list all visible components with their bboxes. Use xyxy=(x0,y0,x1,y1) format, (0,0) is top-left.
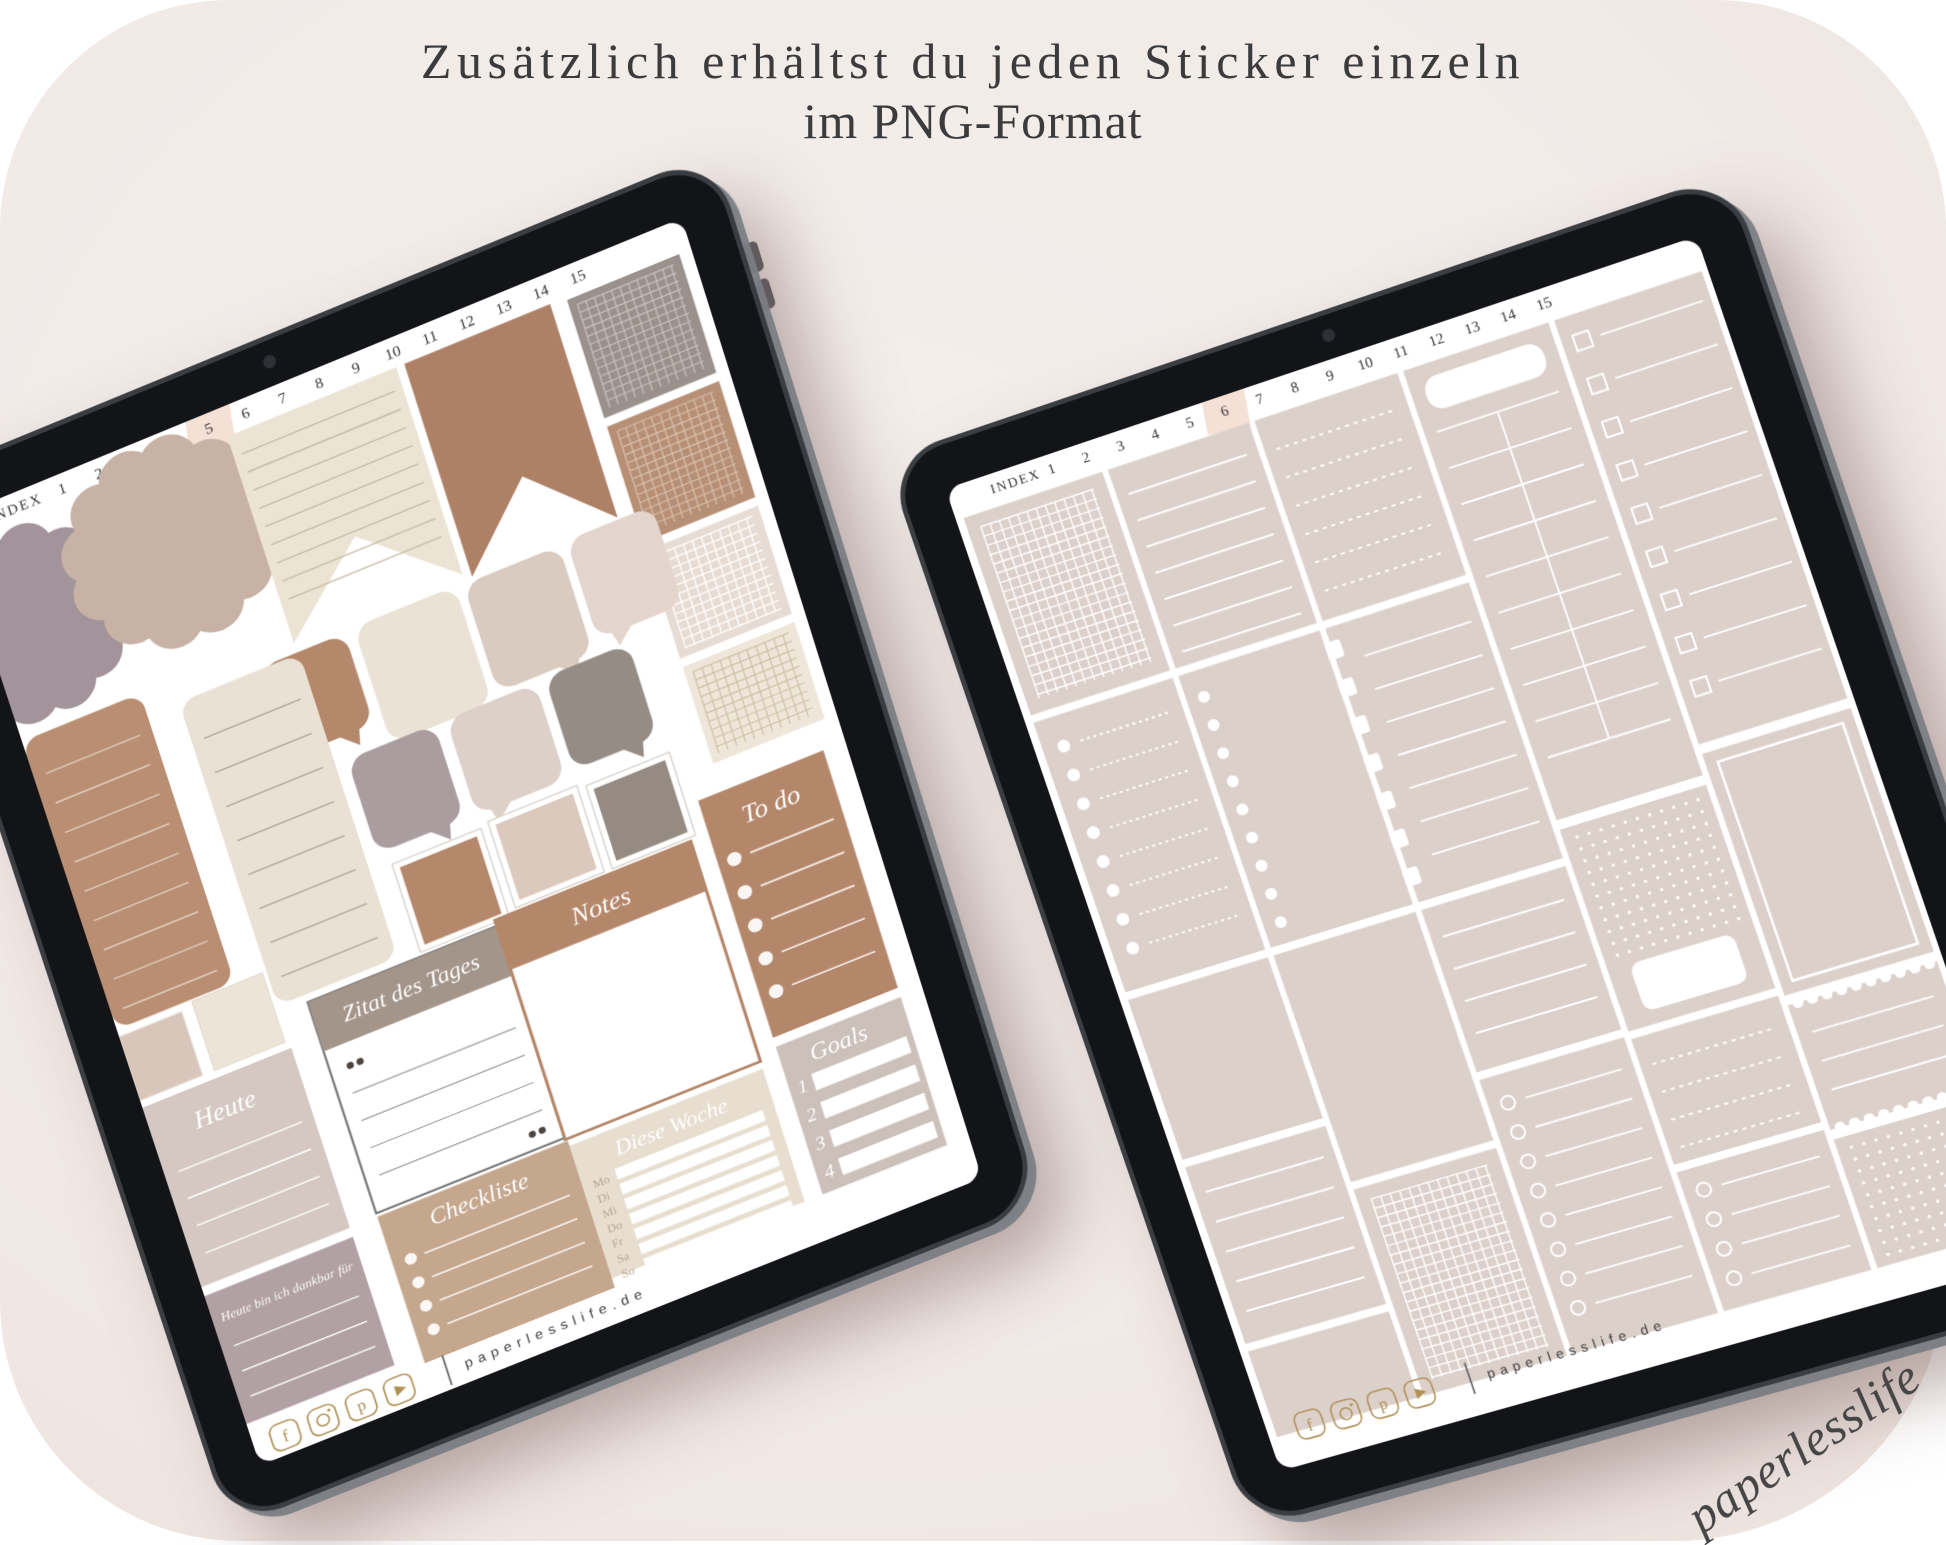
svg-text:1: 1 xyxy=(1046,461,1058,479)
svg-text:14: 14 xyxy=(1498,306,1518,327)
svg-text:9: 9 xyxy=(1324,367,1337,385)
svg-text:8: 8 xyxy=(1289,379,1302,397)
svg-text:10: 10 xyxy=(383,342,403,364)
svg-text:6: 6 xyxy=(239,404,252,423)
svg-text:12: 12 xyxy=(457,312,477,334)
svg-text:12: 12 xyxy=(1427,330,1447,351)
svg-text:2: 2 xyxy=(1080,449,1092,467)
svg-text:4: 4 xyxy=(1149,426,1161,444)
svg-text:11: 11 xyxy=(420,327,439,348)
svg-text:5: 5 xyxy=(1184,414,1196,432)
svg-text:13: 13 xyxy=(494,297,514,319)
svg-text:7: 7 xyxy=(1254,391,1267,409)
svg-text:1: 1 xyxy=(56,480,68,498)
svg-text:7: 7 xyxy=(276,389,289,408)
svg-text:p: p xyxy=(354,1395,368,1416)
svg-text:15: 15 xyxy=(568,266,588,288)
svg-text:11: 11 xyxy=(1391,342,1410,363)
svg-text:15: 15 xyxy=(1534,294,1554,315)
svg-text:9: 9 xyxy=(350,359,363,378)
svg-text:14: 14 xyxy=(531,282,551,304)
svg-text:13: 13 xyxy=(1462,318,1482,339)
svg-text:INDEX: INDEX xyxy=(0,491,45,527)
svg-text:8: 8 xyxy=(313,374,326,393)
svg-text:10: 10 xyxy=(1356,354,1376,375)
svg-text:f: f xyxy=(280,1426,293,1447)
svg-text:3: 3 xyxy=(1114,437,1126,455)
